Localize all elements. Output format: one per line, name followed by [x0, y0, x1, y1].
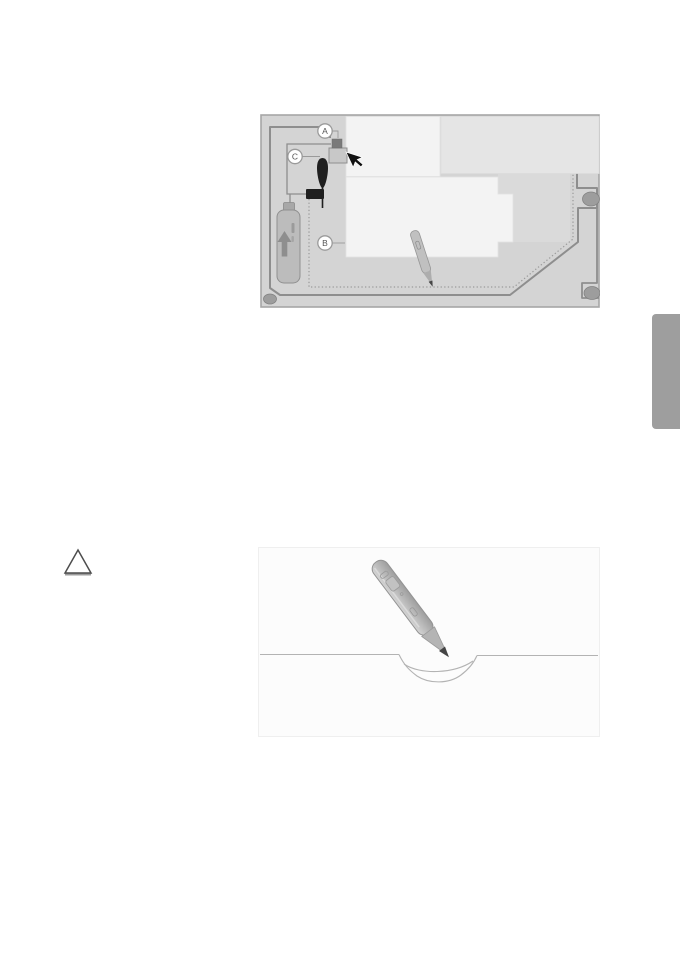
figure-installation-map: A C B — [260, 114, 600, 308]
warning-triangle-icon — [62, 546, 94, 578]
callout-b-label: B — [322, 238, 328, 248]
warning-triangle-outline — [65, 550, 91, 573]
manual-page: A C B — [0, 0, 680, 964]
building-main-house — [346, 177, 513, 257]
can-label-mark — [292, 223, 295, 233]
awl-spike — [322, 187, 324, 208]
can-up-arrow-shaft — [282, 242, 288, 257]
obstacle-oval-right — [583, 192, 600, 206]
callout-a-label: A — [322, 126, 328, 136]
spray-can-icon — [277, 203, 300, 284]
section-edge-tab — [652, 314, 680, 429]
can-label-mark-2 — [292, 236, 294, 242]
charging-station-unit — [332, 139, 342, 148]
can-body — [277, 210, 300, 283]
callout-c-label: C — [292, 152, 298, 162]
building-top — [346, 117, 440, 177]
obstacle-oval-corner — [584, 287, 600, 300]
wire-connector — [306, 189, 324, 199]
charging-station-base — [329, 148, 347, 163]
building-top-right — [441, 117, 599, 174]
figure-wire-trench — [258, 547, 600, 737]
obstacle-oval-left — [264, 294, 277, 304]
